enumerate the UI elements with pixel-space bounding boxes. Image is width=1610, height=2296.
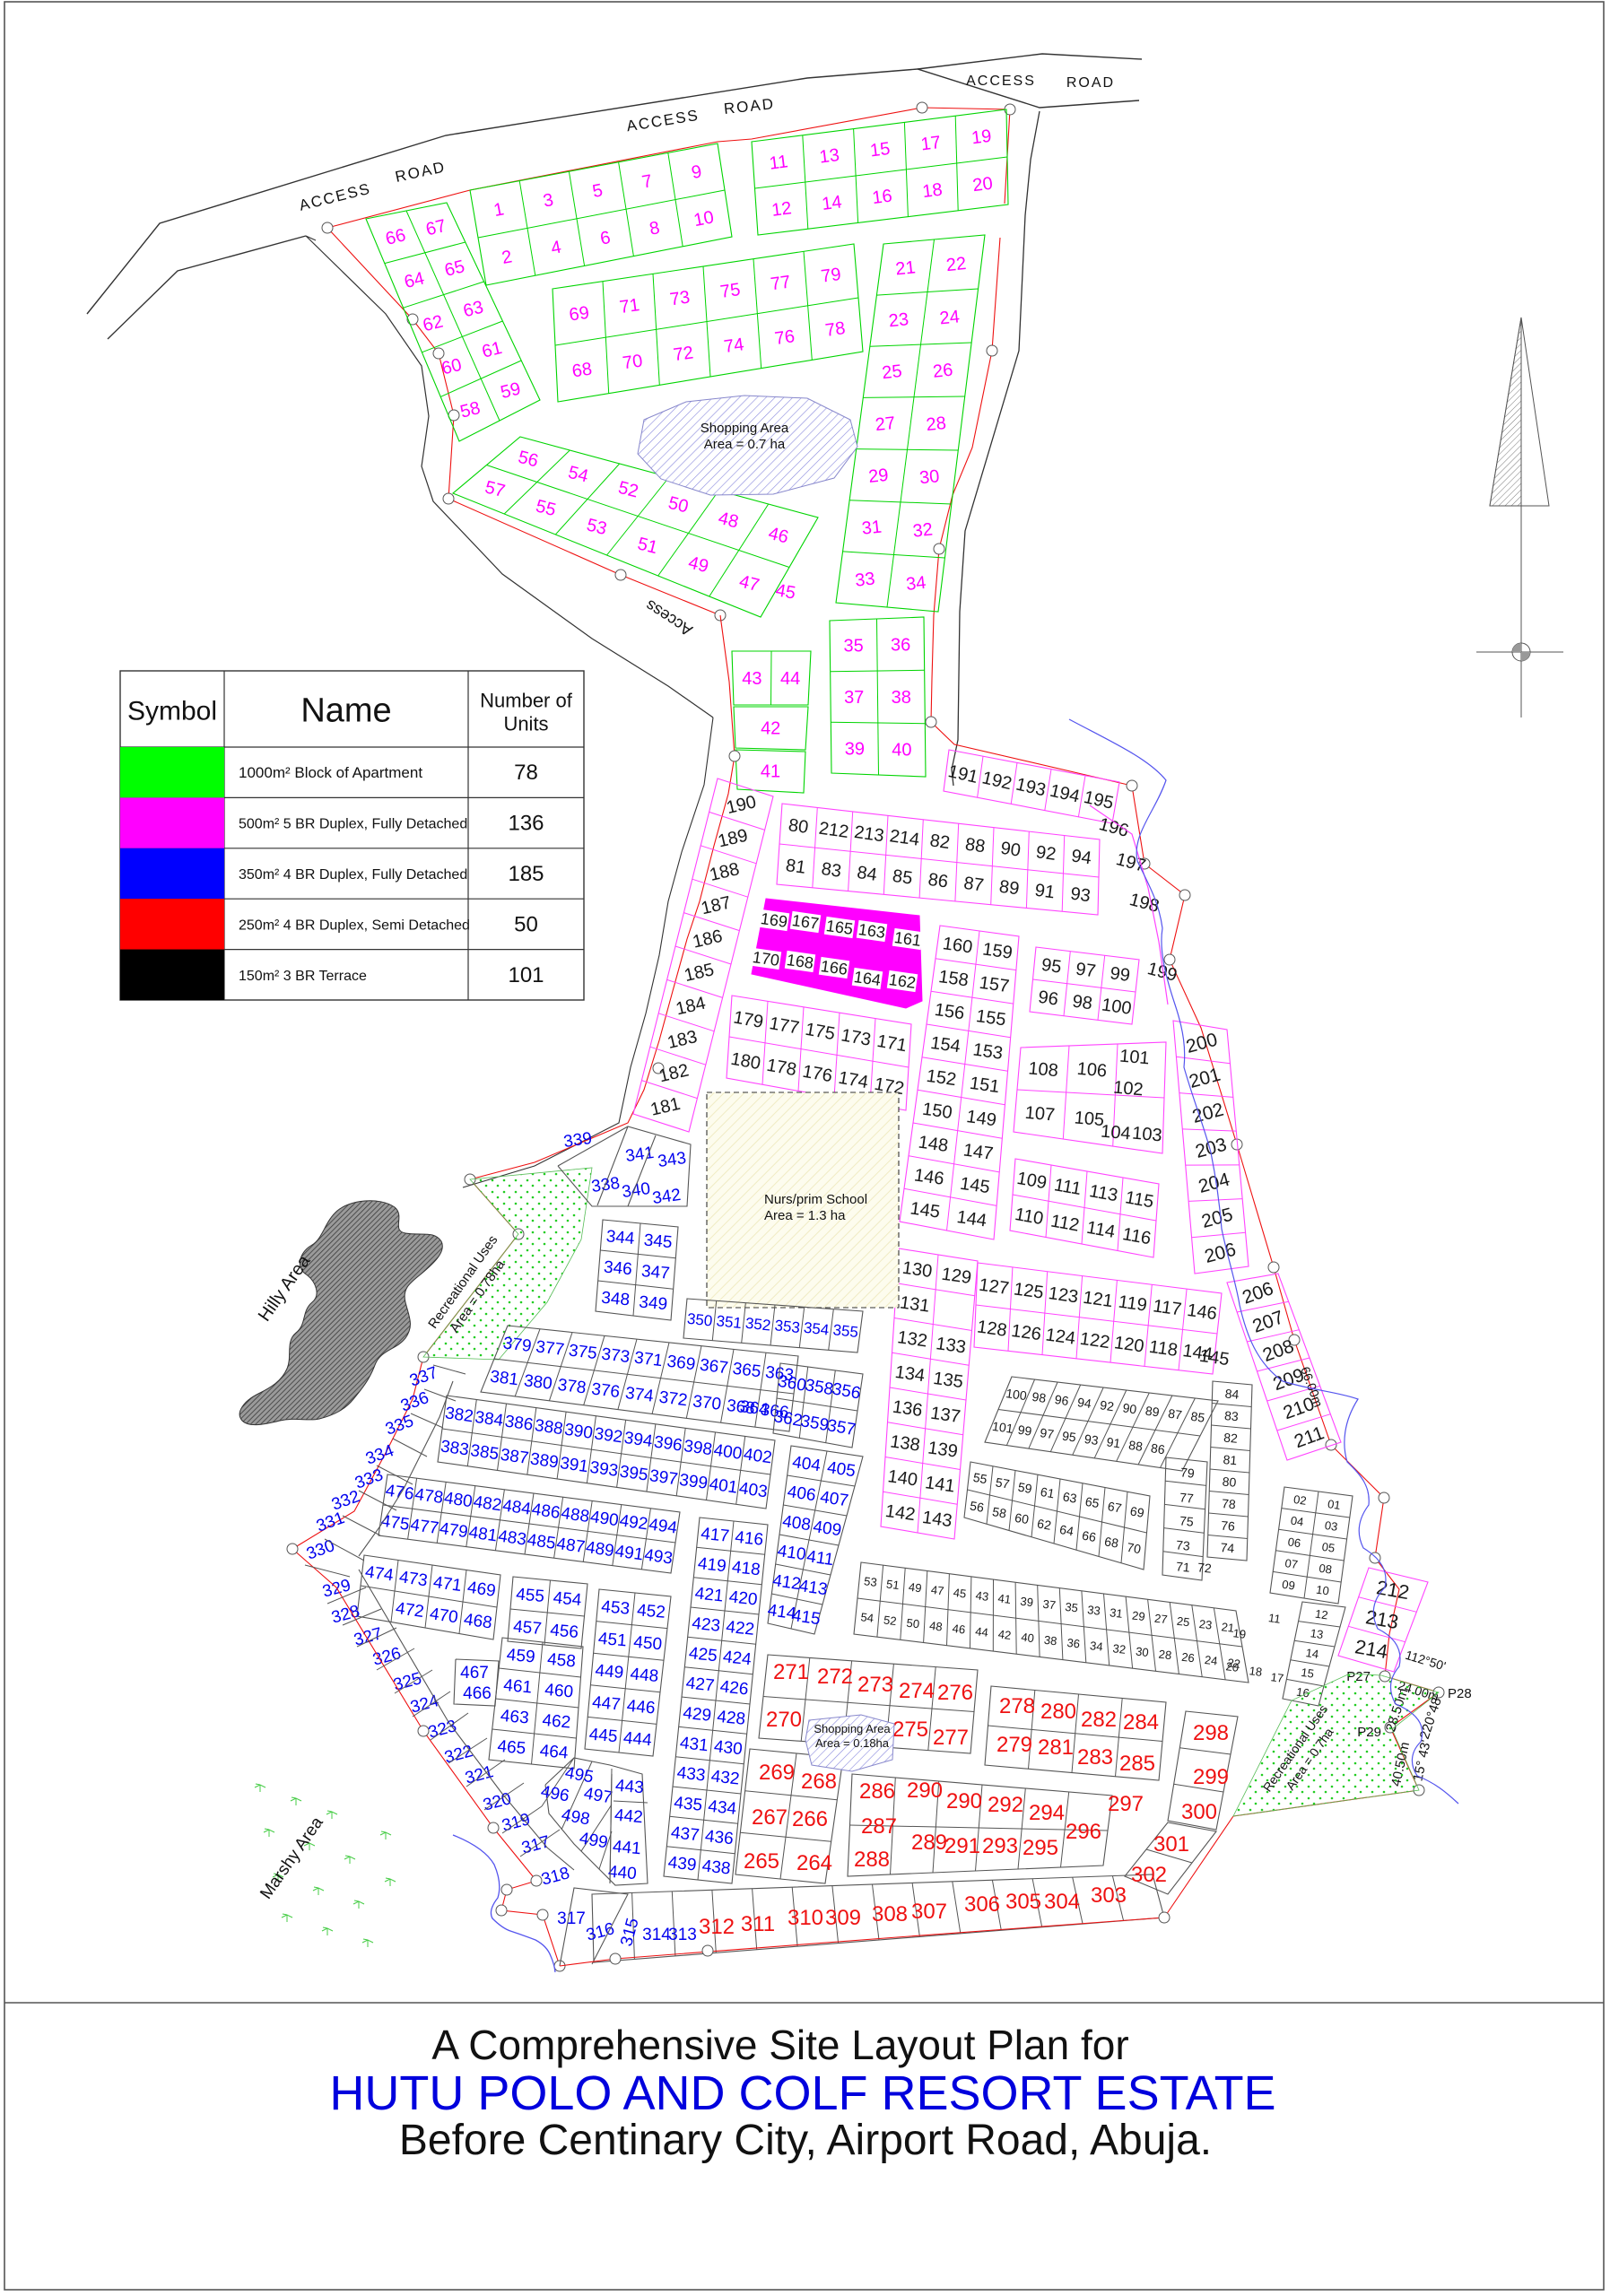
svg-text:411: 411 [805, 1547, 835, 1570]
svg-text:473: 473 [398, 1568, 429, 1590]
svg-text:45: 45 [953, 1586, 967, 1601]
svg-text:436: 436 [704, 1827, 735, 1848]
svg-text:31: 31 [1109, 1605, 1123, 1621]
svg-text:429: 429 [682, 1704, 712, 1726]
svg-text:ROAD: ROAD [1066, 75, 1115, 91]
svg-text:278: 278 [999, 1694, 1035, 1718]
svg-text:15: 15 [1301, 1665, 1315, 1681]
svg-text:Symbol: Symbol [127, 697, 217, 726]
svg-text:91: 91 [1106, 1434, 1122, 1450]
svg-text:313: 313 [668, 1926, 697, 1944]
svg-text:A Comprehensive Site Layout Pl: A Comprehensive Site Layout Plan for [431, 2022, 1128, 2068]
svg-text:25: 25 [1176, 1614, 1190, 1630]
svg-text:52: 52 [883, 1613, 897, 1628]
svg-text:155: 155 [975, 1006, 1007, 1030]
svg-text:140: 140 [886, 1466, 918, 1490]
svg-text:63: 63 [1062, 1489, 1078, 1505]
svg-text:396: 396 [653, 1432, 683, 1455]
svg-text:101: 101 [508, 963, 544, 987]
svg-text:12: 12 [1314, 1607, 1328, 1622]
svg-text:373: 373 [600, 1344, 631, 1367]
svg-text:404: 404 [791, 1453, 822, 1475]
svg-text:448: 448 [630, 1665, 659, 1686]
svg-text:17: 17 [1270, 1670, 1284, 1685]
svg-text:1000m² Block of Apartment: 1000m² Block of Apartment [239, 764, 422, 781]
svg-text:98: 98 [1071, 992, 1093, 1014]
svg-text:445: 445 [588, 1726, 618, 1747]
svg-text:393: 393 [588, 1458, 619, 1481]
svg-text:277: 277 [933, 1726, 969, 1750]
svg-text:492: 492 [618, 1511, 648, 1534]
svg-text:284: 284 [1123, 1710, 1159, 1735]
svg-text:81: 81 [785, 856, 807, 878]
svg-text:162: 162 [888, 970, 918, 992]
svg-text:28: 28 [925, 413, 946, 435]
svg-text:381: 381 [489, 1368, 519, 1390]
svg-text:68: 68 [1103, 1534, 1119, 1550]
svg-text:303: 303 [1091, 1883, 1127, 1908]
svg-text:Area = 1.3 ha: Area = 1.3 ha [764, 1208, 846, 1223]
svg-text:213: 213 [853, 822, 885, 846]
svg-text:157: 157 [978, 973, 1010, 996]
svg-text:86: 86 [1150, 1440, 1166, 1457]
svg-text:370: 370 [692, 1392, 722, 1414]
svg-text:290: 290 [907, 1779, 943, 1803]
svg-text:21: 21 [894, 257, 916, 279]
svg-text:18: 18 [1249, 1664, 1263, 1679]
svg-text:264: 264 [796, 1851, 832, 1875]
svg-text:141: 141 [924, 1473, 956, 1496]
svg-text:30: 30 [918, 466, 940, 488]
svg-text:103: 103 [1131, 1124, 1162, 1146]
svg-text:371: 371 [633, 1349, 664, 1371]
svg-text:54: 54 [860, 1610, 875, 1625]
svg-text:Units: Units [503, 713, 548, 735]
svg-text:46: 46 [952, 1622, 966, 1637]
svg-text:88: 88 [1127, 1438, 1144, 1454]
svg-text:95: 95 [1040, 955, 1063, 978]
svg-text:90: 90 [999, 839, 1022, 861]
svg-text:23: 23 [888, 309, 909, 331]
svg-text:464: 464 [539, 1742, 570, 1763]
svg-text:36: 36 [1066, 1636, 1081, 1651]
svg-text:170: 170 [752, 948, 781, 970]
svg-text:434: 434 [707, 1797, 737, 1819]
svg-text:82: 82 [928, 831, 951, 853]
svg-text:80: 80 [1222, 1474, 1237, 1490]
svg-text:50: 50 [514, 912, 538, 936]
svg-text:13: 13 [1310, 1626, 1324, 1641]
svg-text:343: 343 [657, 1149, 687, 1171]
svg-text:415: 415 [791, 1606, 822, 1629]
svg-text:14: 14 [821, 192, 843, 214]
svg-text:61: 61 [1040, 1484, 1056, 1500]
svg-text:84: 84 [856, 863, 878, 885]
svg-text:144: 144 [955, 1207, 988, 1231]
svg-text:149: 149 [965, 1107, 997, 1130]
svg-text:270: 270 [766, 1708, 802, 1732]
svg-text:348: 348 [600, 1289, 630, 1310]
svg-text:274: 274 [899, 1679, 935, 1703]
svg-text:87: 87 [1167, 1406, 1183, 1422]
svg-text:96: 96 [1037, 987, 1059, 1010]
svg-text:105: 105 [1074, 1108, 1105, 1130]
svg-text:HUTU POLO AND COLF RESORT ESTA: HUTU POLO AND COLF RESORT ESTATE [329, 2066, 1275, 2120]
svg-text:97: 97 [1075, 960, 1097, 982]
svg-text:352: 352 [744, 1315, 771, 1335]
svg-text:04: 04 [1290, 1514, 1304, 1529]
svg-text:486: 486 [530, 1500, 561, 1523]
svg-text:72: 72 [1197, 1560, 1213, 1575]
svg-text:138: 138 [889, 1431, 921, 1455]
svg-text:461: 461 [502, 1676, 532, 1698]
svg-text:71: 71 [618, 295, 640, 317]
svg-text:123: 123 [1047, 1283, 1079, 1307]
svg-text:20: 20 [1225, 1659, 1240, 1674]
svg-text:127: 127 [978, 1275, 1010, 1299]
svg-text:41: 41 [997, 1591, 1012, 1606]
svg-text:353: 353 [774, 1317, 801, 1336]
svg-text:92: 92 [1099, 1397, 1115, 1413]
svg-text:43: 43 [975, 1588, 989, 1604]
svg-text:439: 439 [667, 1853, 698, 1874]
svg-text:472: 472 [395, 1599, 425, 1622]
svg-text:45: 45 [774, 580, 797, 604]
svg-text:73: 73 [668, 288, 691, 310]
svg-text:121: 121 [1082, 1288, 1114, 1311]
svg-text:99: 99 [1017, 1422, 1033, 1439]
svg-text:466: 466 [463, 1684, 492, 1703]
svg-text:487: 487 [555, 1535, 586, 1557]
svg-text:59: 59 [1017, 1480, 1033, 1496]
svg-text:385: 385 [469, 1441, 500, 1464]
svg-text:97: 97 [1039, 1425, 1055, 1441]
svg-text:91: 91 [1033, 881, 1056, 903]
svg-text:142: 142 [884, 1501, 917, 1525]
svg-text:27: 27 [875, 413, 896, 435]
svg-text:435: 435 [673, 1794, 703, 1815]
svg-text:369: 369 [666, 1352, 696, 1375]
svg-text:288: 288 [854, 1848, 890, 1872]
svg-text:413: 413 [797, 1577, 828, 1599]
svg-text:07: 07 [1284, 1556, 1299, 1571]
svg-text:471: 471 [432, 1573, 463, 1596]
svg-text:387: 387 [499, 1446, 529, 1468]
svg-text:469: 469 [466, 1578, 497, 1601]
svg-text:286: 286 [859, 1779, 895, 1804]
svg-text:379: 379 [502, 1334, 533, 1356]
svg-text:156: 156 [934, 1000, 966, 1023]
svg-text:349: 349 [638, 1293, 667, 1315]
svg-text:Name: Name [300, 692, 391, 730]
svg-text:70: 70 [622, 351, 644, 373]
svg-text:94: 94 [1076, 1395, 1092, 1411]
svg-text:489: 489 [585, 1538, 615, 1561]
svg-text:05: 05 [1321, 1540, 1336, 1555]
svg-text:407: 407 [819, 1488, 849, 1510]
svg-text:346: 346 [603, 1258, 632, 1280]
svg-text:17: 17 [919, 133, 942, 155]
svg-text:405: 405 [826, 1458, 857, 1481]
svg-text:400: 400 [712, 1441, 743, 1464]
svg-text:27: 27 [1153, 1612, 1168, 1627]
svg-text:12: 12 [770, 198, 793, 221]
svg-text:312: 312 [699, 1915, 735, 1939]
svg-text:22: 22 [945, 254, 967, 275]
svg-text:169: 169 [760, 909, 789, 931]
svg-text:133: 133 [935, 1334, 967, 1357]
svg-text:299: 299 [1193, 1765, 1229, 1789]
svg-text:214: 214 [888, 826, 920, 849]
svg-text:143: 143 [921, 1508, 953, 1531]
svg-text:421: 421 [694, 1584, 725, 1605]
svg-text:477: 477 [409, 1516, 439, 1538]
svg-text:86: 86 [927, 870, 949, 892]
svg-text:295: 295 [1023, 1836, 1058, 1860]
svg-text:79: 79 [1180, 1465, 1196, 1480]
svg-text:44: 44 [975, 1624, 989, 1639]
svg-text:476: 476 [384, 1482, 414, 1504]
svg-text:449: 449 [595, 1661, 624, 1683]
svg-text:457: 457 [512, 1617, 542, 1639]
svg-text:09: 09 [1281, 1578, 1295, 1593]
svg-text:107: 107 [1024, 1103, 1056, 1126]
svg-text:355: 355 [832, 1321, 859, 1341]
svg-text:06: 06 [1287, 1535, 1301, 1550]
svg-text:152: 152 [925, 1066, 957, 1090]
svg-text:Shopping Area: Shopping Area [814, 1722, 891, 1735]
svg-text:392: 392 [593, 1424, 623, 1447]
svg-text:03: 03 [1324, 1518, 1338, 1534]
svg-text:442: 442 [614, 1806, 643, 1828]
svg-text:73: 73 [1176, 1537, 1191, 1552]
svg-text:298: 298 [1193, 1721, 1229, 1745]
svg-text:19: 19 [970, 126, 993, 149]
svg-text:120: 120 [1113, 1333, 1145, 1356]
svg-text:465: 465 [497, 1737, 527, 1759]
svg-text:456: 456 [549, 1621, 579, 1642]
svg-text:441: 441 [612, 1838, 641, 1859]
svg-text:38: 38 [892, 688, 911, 708]
svg-text:432: 432 [710, 1767, 741, 1788]
svg-text:23: 23 [1198, 1617, 1213, 1632]
svg-text:282: 282 [1081, 1708, 1117, 1732]
svg-text:297: 297 [1108, 1792, 1144, 1816]
svg-text:317: 317 [557, 1909, 586, 1928]
svg-text:85: 85 [1190, 1409, 1206, 1425]
svg-text:305: 305 [1005, 1890, 1041, 1914]
svg-text:48: 48 [928, 1619, 943, 1634]
svg-text:279: 279 [996, 1733, 1032, 1757]
svg-text:268: 268 [801, 1770, 837, 1794]
svg-text:36: 36 [891, 635, 910, 655]
svg-text:10: 10 [692, 207, 716, 230]
svg-text:491: 491 [614, 1542, 644, 1564]
svg-text:444: 444 [622, 1729, 653, 1751]
svg-text:49: 49 [908, 1580, 922, 1596]
svg-text:482: 482 [472, 1492, 502, 1515]
svg-text:145: 145 [909, 1198, 941, 1222]
svg-text:136: 136 [892, 1397, 924, 1421]
svg-text:56: 56 [969, 1498, 985, 1514]
svg-text:311: 311 [741, 1912, 775, 1936]
svg-text:453: 453 [600, 1597, 630, 1619]
svg-text:35: 35 [1065, 1600, 1079, 1615]
svg-text:78: 78 [1221, 1496, 1236, 1511]
svg-text:294: 294 [1029, 1801, 1065, 1825]
svg-text:430: 430 [713, 1737, 744, 1759]
svg-text:459: 459 [506, 1646, 535, 1667]
svg-text:351: 351 [716, 1312, 743, 1332]
svg-text:345: 345 [643, 1231, 673, 1253]
svg-text:406: 406 [786, 1483, 816, 1505]
svg-text:500m² 5 BR Duplex, Fully Deta: 500m² 5 BR Duplex, Fully Detached [239, 817, 467, 832]
svg-text:15: 15 [869, 139, 892, 161]
svg-text:275: 275 [892, 1718, 928, 1742]
svg-text:93: 93 [1069, 884, 1092, 907]
svg-text:39: 39 [845, 739, 865, 759]
svg-text:118: 118 [1148, 1337, 1179, 1361]
svg-text:145: 145 [1198, 1346, 1231, 1370]
svg-text:314: 314 [642, 1926, 671, 1944]
svg-text:307: 307 [911, 1900, 947, 1924]
svg-text:310: 310 [788, 1906, 823, 1930]
svg-text:147: 147 [962, 1140, 995, 1163]
svg-text:389: 389 [529, 1449, 560, 1472]
svg-text:77: 77 [770, 272, 792, 294]
svg-text:81: 81 [1223, 1452, 1238, 1467]
svg-text:50: 50 [906, 1616, 920, 1631]
svg-text:18: 18 [921, 180, 944, 203]
svg-text:158: 158 [937, 967, 970, 990]
svg-text:106: 106 [1076, 1059, 1108, 1082]
svg-text:302: 302 [1131, 1863, 1167, 1887]
svg-text:160: 160 [942, 934, 974, 957]
svg-text:451: 451 [597, 1630, 627, 1651]
svg-text:450: 450 [632, 1633, 662, 1655]
svg-text:Area = 0.18ha: Area = 0.18ha [815, 1736, 890, 1750]
svg-text:29: 29 [867, 465, 889, 487]
svg-text:293: 293 [982, 1834, 1018, 1858]
svg-text:433: 433 [676, 1763, 707, 1785]
svg-text:69: 69 [1129, 1503, 1145, 1519]
svg-text:383: 383 [439, 1437, 470, 1459]
svg-text:401: 401 [708, 1474, 738, 1497]
svg-text:25: 25 [881, 361, 902, 383]
svg-text:426: 426 [719, 1677, 750, 1699]
svg-text:443: 443 [614, 1777, 644, 1798]
svg-text:478: 478 [413, 1485, 444, 1508]
svg-text:281: 281 [1038, 1735, 1074, 1760]
svg-text:250m² 4 BR Duplex, Semi Detac: 250m² 4 BR Duplex, Semi Detached [239, 918, 470, 933]
svg-text:446: 446 [626, 1697, 656, 1718]
svg-text:42: 42 [761, 719, 780, 739]
svg-text:26: 26 [932, 361, 953, 382]
svg-text:74: 74 [723, 335, 745, 357]
svg-text:26: 26 [1181, 1650, 1196, 1665]
svg-text:64: 64 [1058, 1522, 1075, 1538]
svg-text:154: 154 [929, 1033, 962, 1057]
svg-text:47: 47 [930, 1583, 944, 1598]
svg-text:43: 43 [742, 669, 761, 689]
svg-text:391: 391 [559, 1454, 589, 1476]
svg-text:85: 85 [892, 866, 914, 889]
svg-text:354: 354 [803, 1319, 830, 1339]
svg-text:88: 88 [964, 835, 987, 857]
svg-text:74: 74 [1220, 1540, 1235, 1555]
svg-text:53: 53 [863, 1574, 877, 1589]
svg-text:163: 163 [857, 920, 887, 942]
svg-text:265: 265 [744, 1849, 779, 1874]
svg-text:19: 19 [1232, 1626, 1247, 1641]
svg-text:10: 10 [1315, 1583, 1329, 1598]
svg-text:342: 342 [651, 1186, 682, 1208]
svg-text:69: 69 [568, 303, 590, 326]
svg-text:65: 65 [1084, 1494, 1101, 1510]
svg-text:101: 101 [991, 1419, 1014, 1436]
svg-text:84: 84 [1224, 1387, 1240, 1402]
svg-text:395: 395 [618, 1462, 648, 1484]
svg-text:301: 301 [1153, 1832, 1189, 1857]
svg-text:460: 460 [544, 1681, 573, 1702]
svg-text:380: 380 [523, 1371, 553, 1394]
svg-text:39: 39 [1020, 1595, 1034, 1610]
svg-text:420: 420 [728, 1587, 759, 1609]
svg-text:20: 20 [971, 174, 994, 196]
svg-text:148: 148 [917, 1133, 949, 1156]
svg-text:168: 168 [786, 951, 815, 972]
svg-text:424: 424 [722, 1648, 753, 1669]
svg-text:463: 463 [500, 1707, 529, 1728]
svg-text:382: 382 [444, 1404, 474, 1426]
svg-text:458: 458 [546, 1650, 576, 1672]
svg-text:475: 475 [379, 1512, 410, 1535]
svg-text:481: 481 [467, 1523, 498, 1545]
svg-text:35: 35 [843, 637, 863, 657]
svg-text:34: 34 [1089, 1639, 1103, 1654]
svg-text:374: 374 [624, 1384, 655, 1406]
svg-text:480: 480 [443, 1489, 474, 1511]
svg-text:82: 82 [1223, 1431, 1239, 1446]
svg-text:423: 423 [691, 1614, 721, 1636]
svg-text:28: 28 [1158, 1648, 1172, 1663]
svg-text:131: 131 [899, 1292, 931, 1316]
svg-text:24: 24 [1204, 1653, 1218, 1668]
svg-text:419: 419 [697, 1554, 727, 1576]
svg-text:455: 455 [515, 1585, 544, 1606]
svg-text:11: 11 [768, 152, 788, 173]
svg-text:95: 95 [1061, 1429, 1077, 1445]
svg-text:92: 92 [1035, 842, 1057, 865]
svg-text:273: 273 [857, 1673, 893, 1697]
svg-text:350: 350 [686, 1310, 713, 1330]
svg-text:390: 390 [563, 1421, 594, 1443]
svg-text:51: 51 [885, 1577, 900, 1592]
svg-text:137: 137 [929, 1404, 962, 1427]
svg-text:153: 153 [971, 1039, 1004, 1063]
svg-text:44: 44 [780, 669, 800, 689]
svg-text:60: 60 [1014, 1510, 1030, 1526]
svg-text:13: 13 [818, 145, 840, 168]
svg-text:425: 425 [688, 1644, 718, 1665]
svg-text:283: 283 [1077, 1745, 1113, 1770]
svg-text:365: 365 [732, 1360, 762, 1382]
svg-text:378: 378 [557, 1376, 587, 1398]
svg-text:440: 440 [607, 1863, 637, 1884]
svg-text:422: 422 [725, 1618, 755, 1639]
svg-text:96: 96 [1054, 1392, 1070, 1408]
svg-text:108: 108 [1028, 1058, 1059, 1081]
